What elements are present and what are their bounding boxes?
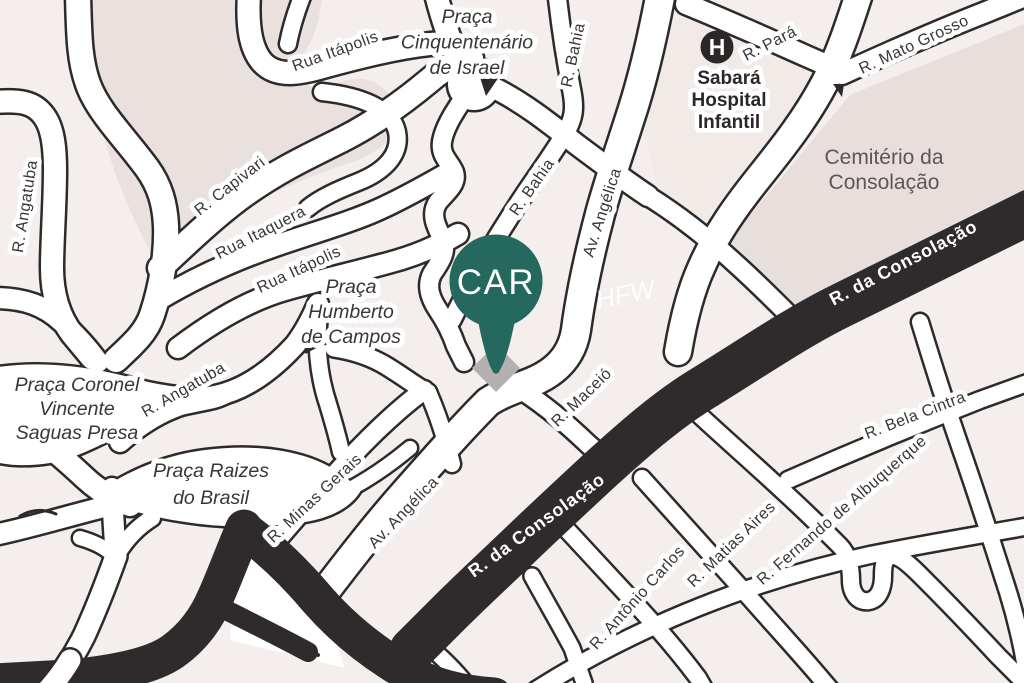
svg-text:Infantil: Infantil	[698, 112, 760, 133]
svg-text:Hospital: Hospital	[692, 90, 767, 111]
svg-text:Cemitério da: Cemitério da	[824, 146, 943, 169]
svg-text:Sabará: Sabará	[697, 68, 761, 89]
svg-text:Consolação: Consolação	[829, 171, 940, 194]
svg-text:CAR: CAR	[457, 263, 535, 302]
svg-text:H: H	[709, 34, 726, 60]
